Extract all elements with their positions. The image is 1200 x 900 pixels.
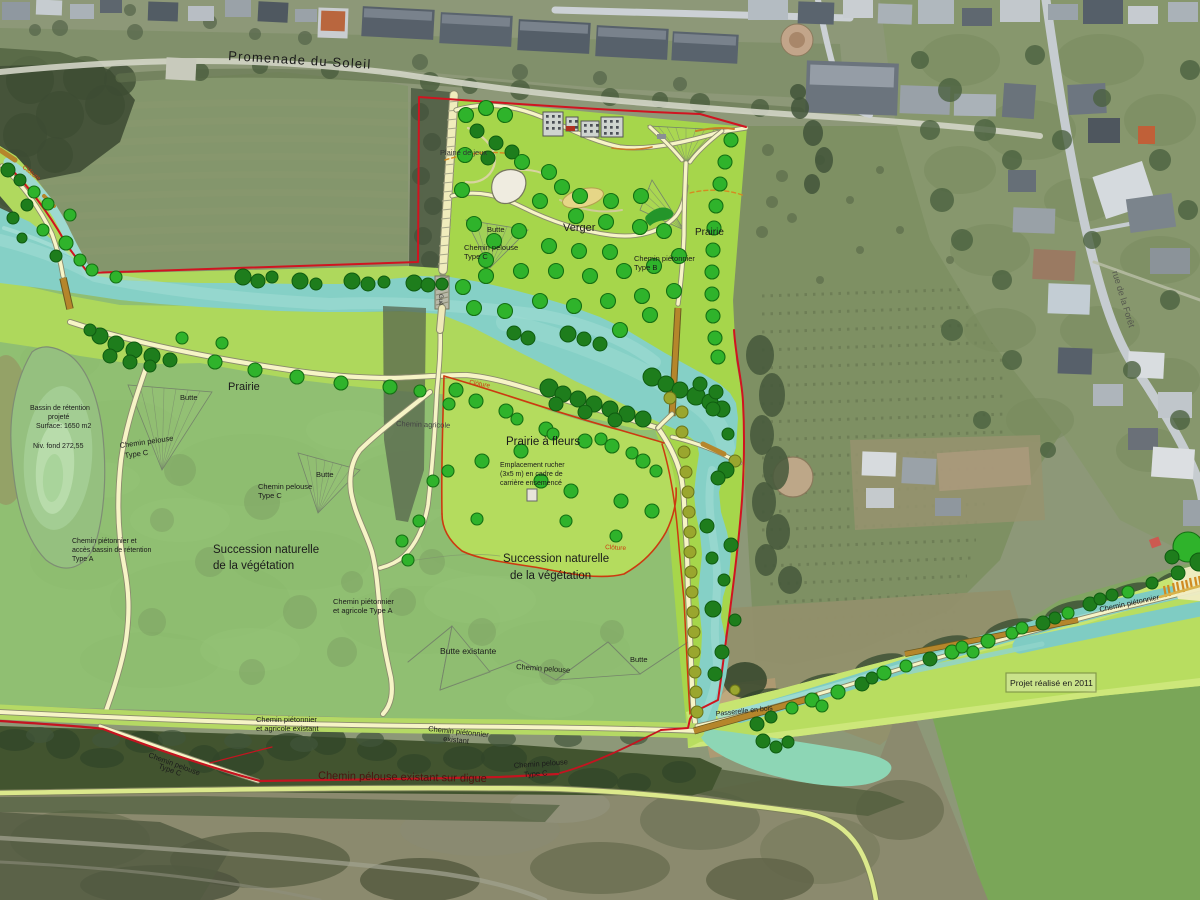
svg-text:de la végétation: de la végétation [510, 570, 591, 582]
svg-text:Projet réalisé en 2011: Projet réalisé en 2011 [1010, 678, 1093, 688]
svg-text:Butte: Butte [630, 655, 648, 664]
svg-text:accès bassin de rétention: accès bassin de rétention [72, 547, 151, 554]
svg-text:Succession naturelle: Succession naturelle [503, 553, 609, 565]
svg-text:Clôture: Clôture [605, 544, 627, 552]
svg-text:Surface: 1650 m2: Surface: 1650 m2 [36, 423, 91, 430]
svg-text:Niv. fond 272,55: Niv. fond 272,55 [33, 443, 84, 450]
svg-text:Chemin piétonnier: Chemin piétonnier [333, 597, 394, 606]
svg-text:Type B: Type B [634, 263, 657, 272]
svg-text:Type C: Type C [464, 252, 488, 261]
svg-text:Type C: Type C [524, 768, 549, 779]
svg-text:Prairie: Prairie [228, 381, 260, 393]
svg-text:Chemin pelouse: Chemin pelouse [258, 482, 312, 491]
svg-text:Butte: Butte [487, 225, 505, 234]
svg-text:Prairie: Prairie [695, 227, 724, 238]
svg-text:Succession naturelle: Succession naturelle [213, 544, 319, 556]
svg-text:Verger: Verger [563, 222, 596, 234]
svg-text:Butte: Butte [180, 393, 198, 402]
svg-text:Bassin de rétention: Bassin de rétention [30, 405, 90, 412]
svg-text:Plaine de jeux: Plaine de jeux [440, 148, 487, 157]
svg-text:Chemin piétonnier et: Chemin piétonnier et [72, 538, 137, 545]
svg-text:Type C: Type C [258, 491, 282, 500]
svg-text:Chemin pelouse: Chemin pelouse [464, 243, 518, 252]
svg-text:Butte existante: Butte existante [440, 646, 497, 656]
svg-text:Type A: Type A [72, 556, 94, 563]
svg-text:carrière ensemencé: carrière ensemencé [500, 480, 562, 487]
svg-text:Emplacement rucher: Emplacement rucher [500, 462, 565, 469]
svg-text:(3x5 m) en cadre de: (3x5 m) en cadre de [500, 471, 563, 478]
svg-text:Chemin agricole: Chemin agricole [396, 419, 450, 430]
svg-text:Butte: Butte [316, 470, 334, 479]
svg-text:et agricole existant: et agricole existant [256, 724, 319, 733]
svg-text:Gué: Gué [437, 294, 443, 306]
svg-text:Chemin piétonnier: Chemin piétonnier [634, 254, 695, 263]
svg-text:de la végétation: de la végétation [213, 560, 294, 572]
svg-text:Chemin piétonnier: Chemin piétonnier [256, 715, 317, 724]
svg-text:Prairie à fleurs: Prairie à fleurs [506, 436, 580, 448]
svg-text:et agricole Type A: et agricole Type A [333, 606, 392, 615]
svg-text:projeté: projeté [48, 414, 70, 421]
